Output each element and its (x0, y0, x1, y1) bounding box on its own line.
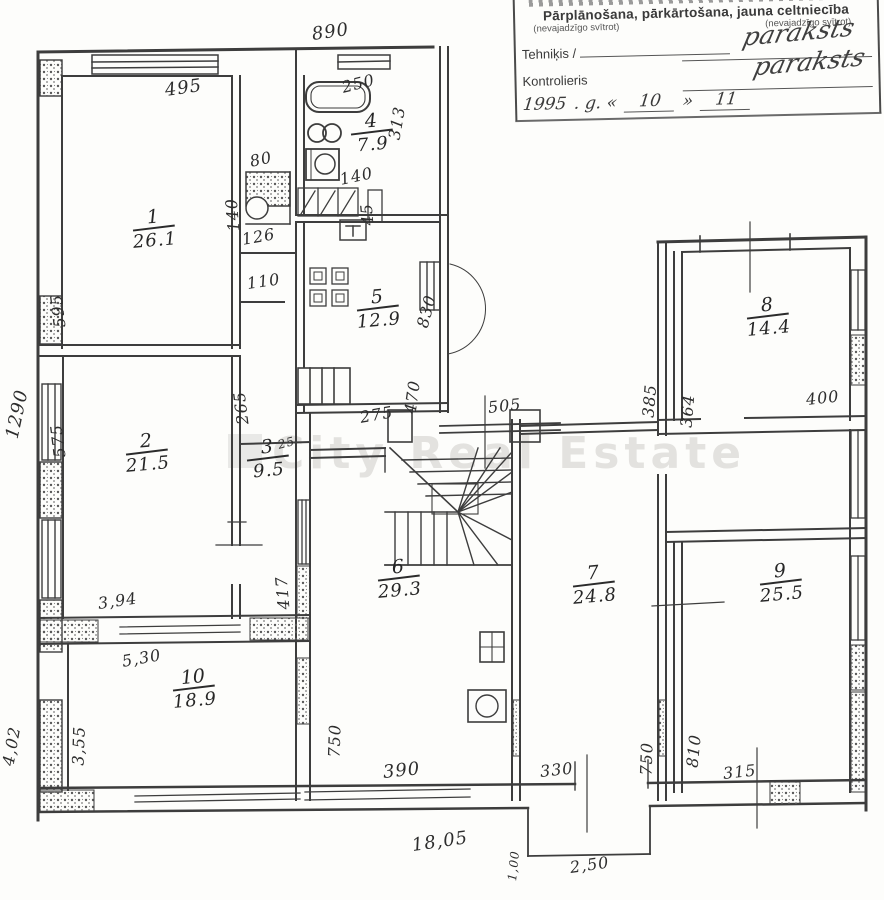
dim-room8-bottom: 400 (805, 387, 840, 409)
room6-top-corridor (310, 396, 560, 468)
room-label-10: 10 18.9 (160, 665, 228, 713)
dim-room7-right: 750 (637, 742, 657, 776)
room-number: 3 (260, 438, 274, 457)
dim-room2-left: 575 (46, 423, 69, 459)
room-number: 5 (370, 288, 384, 307)
room-label-8: 8 14.4 (734, 293, 802, 341)
room-number: 7 (586, 564, 600, 583)
dim-room3-417: 417 (272, 575, 294, 610)
room-number: 2 (139, 432, 153, 451)
kitchen-chimney (298, 368, 350, 404)
controller-row: Kontrolieris (522, 72, 587, 88)
room6-fixtures (468, 632, 506, 722)
room-area: 14.4 (746, 316, 792, 341)
room6-room7-divider (512, 420, 520, 800)
room-number: 9 (773, 562, 787, 581)
controller-label: Kontrolieris (522, 72, 587, 88)
room-label-2: 2 21.5 (113, 429, 181, 477)
porch-step (528, 806, 650, 856)
dim-room9-bottom: 315 (722, 761, 757, 783)
dim-bath-45: 45 (357, 202, 378, 226)
dim-hall-265: 265 (229, 390, 252, 426)
dim-room6-bottom: 390 (382, 758, 421, 783)
toilet (308, 124, 341, 142)
note-left: (nevajadzīgo svītrot) (533, 22, 619, 35)
floor-plan-page: City Real Estate (0, 0, 884, 900)
room-area: 24.8 (572, 584, 618, 609)
room-area: 18.9 (172, 688, 218, 713)
top-windows (92, 55, 390, 74)
kitchen-stove (310, 268, 348, 306)
dim-room7-bottom: 330 (539, 759, 574, 781)
room-area: 29.3 (377, 578, 423, 603)
room-number: 10 (180, 667, 206, 687)
washing-machine (306, 149, 339, 180)
date-row: 1995 . g. « 10 » 11 (522, 89, 752, 115)
room-number: 4 (364, 112, 378, 131)
room-label-5: 5 12.9 (344, 285, 412, 333)
technician-label: Tehniķis / (522, 46, 577, 62)
room-number: 6 (391, 558, 405, 577)
dim-corridor-505: 505 (487, 395, 522, 417)
room-label-6: 6 29.3 (365, 555, 433, 603)
room-label-1: 1 26.1 (120, 205, 188, 253)
room-number: 8 (760, 296, 774, 315)
title-block: Pārplānošana, pārkārtošana, jauna celtni… (513, 0, 882, 122)
dim-corridor-385: 385 (639, 383, 661, 418)
room-number: 1 (146, 208, 160, 227)
date-quote: » (682, 91, 695, 111)
room-area: 9.5 (252, 459, 285, 483)
room-area: 12.9 (356, 308, 402, 333)
room-area: 21.5 (125, 452, 171, 477)
room7-walls (520, 242, 666, 800)
dim-room10-left: 3,55 (69, 726, 89, 766)
dim-room9-left: 810 (683, 733, 705, 768)
dim-room8-left: 364 (677, 393, 699, 428)
technician-row: Tehniķis / (522, 41, 730, 62)
room9-walls (652, 430, 866, 828)
dim-stove-height: 140 (222, 197, 244, 232)
date-day: 11 (700, 89, 752, 111)
date-month: 10 (624, 90, 676, 112)
date-g: . g. « (573, 93, 618, 114)
dim-room1-left: 595 (46, 293, 69, 329)
stove-fixture (246, 172, 290, 224)
technician-blank-line (580, 41, 730, 57)
staircase (385, 448, 512, 565)
room-area: 25.5 (759, 582, 805, 607)
date-year: 1995 (522, 94, 568, 115)
room-label-7: 7 24.8 (560, 561, 628, 609)
room-area: 26.1 (132, 228, 178, 253)
dim-room6-left: 750 (325, 724, 345, 758)
room-label-9: 9 25.5 (747, 559, 815, 607)
